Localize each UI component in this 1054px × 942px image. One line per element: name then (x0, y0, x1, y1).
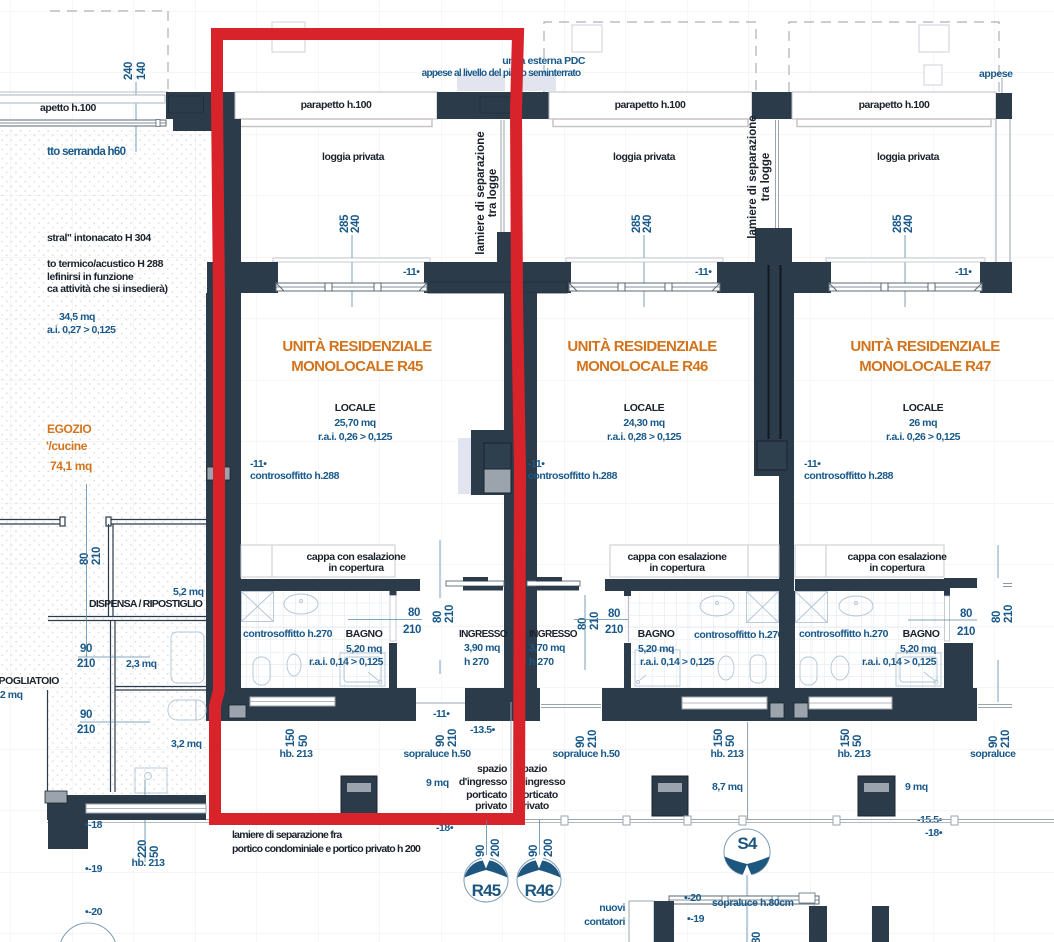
svg-text:50: 50 (725, 735, 737, 747)
svg-text:•-19: •-19 (687, 913, 705, 925)
svg-text:90: 90 (575, 736, 587, 748)
svg-text:controsoffitto h.270: controsoffitto h.270 (243, 628, 333, 640)
svg-text:stral" intonacato H 304: stral" intonacato H 304 (47, 232, 151, 244)
svg-text:MONOLOCALE R45: MONOLOCALE R45 (291, 358, 423, 375)
svg-text:•-19: •-19 (85, 863, 103, 875)
svg-text:h 270: h 270 (529, 656, 554, 668)
svg-text:50: 50 (852, 735, 864, 747)
svg-text:150: 150 (713, 729, 725, 747)
svg-text:5,20 mq: 5,20 mq (346, 643, 382, 655)
svg-text:9 mq: 9 mq (426, 777, 449, 789)
svg-text:80: 80 (751, 932, 763, 942)
svg-text:controsoffitto h.270: controsoffitto h.270 (694, 629, 784, 641)
svg-text:80: 80 (79, 553, 91, 565)
svg-text:parapetto h.100: parapetto h.100 (301, 99, 372, 111)
svg-text:-11•: -11• (955, 266, 972, 278)
svg-text:200: 200 (543, 839, 555, 857)
svg-text:lamiere di separazione: lamiere di separazione (747, 115, 759, 238)
svg-text:210: 210 (403, 624, 421, 636)
svg-text:loggia privata: loggia privata (322, 151, 385, 163)
svg-text:90: 90 (988, 736, 1000, 748)
svg-text:BAGNO: BAGNO (638, 628, 675, 640)
svg-text:BAGNO: BAGNO (903, 628, 940, 640)
svg-text:sopraluce h.80cm: sopraluce h.80cm (712, 897, 794, 909)
svg-text:90: 90 (435, 735, 447, 747)
svg-text:80: 80 (408, 607, 420, 619)
svg-text:210: 210 (77, 658, 95, 670)
svg-text:90: 90 (528, 845, 540, 857)
svg-text:r.a.i. 0,26 > 0,125: r.a.i. 0,26 > 0,125 (318, 431, 393, 443)
svg-text:210: 210 (91, 547, 103, 565)
svg-text:LOCALE: LOCALE (624, 402, 665, 414)
svg-text:sopraluce h.50: sopraluce h.50 (552, 748, 620, 760)
svg-text:parapetto h.100: parapetto h.100 (615, 99, 686, 111)
svg-text:tto serranda h60: tto serranda h60 (47, 146, 126, 158)
svg-text:UNITÀ RESIDENZIALE: UNITÀ RESIDENZIALE (567, 338, 717, 355)
svg-text:lamiere di separazione fra: lamiere di separazione fra (232, 829, 342, 841)
svg-text:-13.5•: -13.5• (470, 724, 496, 736)
svg-text:loggia privata: loggia privata (877, 151, 940, 163)
svg-text:tra logge: tra logge (760, 153, 772, 202)
svg-text:controsoffitto h.270: controsoffitto h.270 (799, 628, 889, 640)
svg-text:-11•: -11• (433, 708, 450, 720)
svg-text:240: 240 (123, 62, 135, 80)
svg-text:210: 210 (1000, 730, 1012, 748)
svg-text:MONOLOCALE R46: MONOLOCALE R46 (576, 358, 708, 375)
svg-text:90: 90 (80, 643, 92, 655)
svg-text:LOCALE: LOCALE (903, 402, 944, 414)
svg-text:-11•: -11• (695, 266, 712, 278)
svg-text:R46: R46 (525, 881, 554, 900)
svg-text:•-20: •-20 (85, 906, 103, 918)
svg-text:d'ingresso: d'ingresso (459, 776, 507, 788)
svg-text:hb. 213: hb. 213 (131, 857, 165, 869)
svg-text:5,2 mq: 5,2 mq (173, 586, 204, 598)
svg-text:r.a.i. 0,14 > 0,125: r.a.i. 0,14 > 0,125 (309, 656, 384, 668)
svg-text:80: 80 (608, 608, 620, 620)
svg-text:in copertura: in copertura (649, 562, 705, 574)
svg-text:h 270: h 270 (464, 656, 489, 668)
svg-text:INGRESSO: INGRESSO (529, 629, 578, 640)
svg-text:r.a.i. 0,26 > 0,125: r.a.i. 0,26 > 0,125 (886, 431, 961, 443)
svg-text:150: 150 (840, 729, 852, 747)
svg-text:controsoffitto h.288: controsoffitto h.288 (250, 470, 340, 482)
svg-text:UNITÀ RESIDENZIALE: UNITÀ RESIDENZIALE (282, 338, 432, 355)
svg-text:UNITÀ RESIDENZIALE: UNITÀ RESIDENZIALE (850, 338, 1000, 355)
svg-text:r.a.i. 0,14 > 0,125: r.a.i. 0,14 > 0,125 (862, 656, 937, 668)
svg-text:hb. 213: hb. 213 (710, 748, 744, 760)
svg-text:-18•: -18• (925, 827, 943, 839)
svg-text:210: 210 (957, 626, 975, 638)
svg-text:SPOGLIATOIO: SPOGLIATOIO (0, 675, 59, 687)
svg-text:INGRESSO: INGRESSO (459, 629, 508, 640)
svg-text:240: 240 (350, 215, 362, 233)
svg-text:74,1 mq: 74,1 mq (50, 459, 92, 473)
svg-text:-11•: -11• (403, 266, 420, 278)
svg-text:contatori: contatori (584, 916, 625, 928)
svg-text:26 mq: 26 mq (909, 417, 937, 429)
svg-text:privato: privato (475, 800, 507, 812)
svg-text:ca attività che si insedierà): ca attività che si insedierà) (47, 283, 168, 295)
svg-text:-11•: -11• (250, 458, 267, 470)
svg-text:5,20 mq: 5,20 mq (638, 643, 674, 655)
svg-text:210: 210 (587, 730, 599, 748)
svg-text:apetto h.100: apetto h.100 (40, 102, 96, 114)
svg-text:80: 80 (960, 608, 972, 620)
svg-text:150: 150 (285, 729, 297, 747)
svg-text:200: 200 (490, 839, 502, 857)
svg-text:hb. 213: hb. 213 (279, 748, 313, 760)
svg-text:5,20 mq: 5,20 mq (900, 643, 936, 655)
svg-text:80: 80 (991, 611, 1003, 623)
svg-text:nuovi: nuovi (599, 902, 625, 914)
svg-text:to termico/acustico H 288: to termico/acustico H 288 (47, 258, 164, 270)
svg-text:LOCALE: LOCALE (335, 402, 376, 414)
svg-text:loggia privata: loggia privata (613, 151, 676, 163)
svg-text:BAGNO: BAGNO (346, 628, 383, 640)
svg-text:4,2 mq: 4,2 mq (0, 689, 23, 701)
svg-text:spazio: spazio (477, 763, 507, 775)
svg-text:MONOLOCALE R47: MONOLOCALE R47 (859, 358, 991, 375)
svg-text:9 mq: 9 mq (905, 781, 928, 793)
svg-text:lefinirsi in funzione: lefinirsi in funzione (47, 271, 134, 283)
svg-text:210: 210 (447, 729, 459, 747)
svg-text:2,3 mq: 2,3 mq (126, 658, 157, 670)
svg-text:controsoffitto h.288: controsoffitto h.288 (528, 470, 618, 482)
svg-text:r.a.i. 0,28 > 0,125: r.a.i. 0,28 > 0,125 (607, 431, 682, 443)
svg-text:140: 140 (136, 62, 148, 80)
svg-text:R45: R45 (472, 881, 501, 900)
svg-text:24,30 mq: 24,30 mq (623, 417, 664, 429)
svg-text:3,90 mq: 3,90 mq (464, 642, 500, 654)
svg-text:in copertura: in copertura (869, 562, 925, 574)
svg-text:DISPENSA / RIPOSTIGLIO: DISPENSA / RIPOSTIGLIO (89, 598, 203, 610)
svg-text:80: 80 (432, 611, 444, 623)
svg-text:tra logge: tra logge (487, 169, 499, 218)
svg-text:hb. 213: hb. 213 (837, 748, 871, 760)
svg-text:220: 220 (137, 840, 149, 858)
svg-text:'/cucine: '/cucine (46, 439, 88, 453)
svg-text:25,70 mq: 25,70 mq (334, 417, 375, 429)
svg-text:r.a.i. 0,14 > 0,125: r.a.i. 0,14 > 0,125 (640, 656, 715, 668)
svg-text:sopraluce: sopraluce (970, 748, 1016, 760)
svg-text:8,7 mq: 8,7 mq (712, 781, 743, 793)
svg-text:portico condominiale e portico: portico condominiale e portico privato h… (232, 843, 421, 855)
svg-text:EGOZIO: EGOZIO (47, 422, 91, 436)
svg-text:•-18: •-18 (85, 819, 103, 831)
svg-text:210: 210 (77, 724, 95, 736)
svg-text:3,2 mq: 3,2 mq (171, 738, 202, 750)
svg-text:34,5 mq: 34,5 mq (59, 311, 95, 323)
svg-text:90: 90 (475, 845, 487, 857)
svg-text:a.i. 0,27 > 0,125: a.i. 0,27 > 0,125 (47, 324, 116, 336)
svg-text:240: 240 (903, 215, 915, 233)
svg-text:•-20: •-20 (684, 892, 702, 904)
svg-text:240: 240 (642, 215, 654, 233)
svg-text:in copertura: in copertura (328, 562, 384, 574)
svg-text:210: 210 (589, 612, 601, 630)
svg-text:parapetto h.100: parapetto h.100 (859, 99, 930, 111)
svg-text:lamiere di separazione: lamiere di separazione (475, 131, 487, 254)
svg-text:50: 50 (298, 735, 310, 747)
svg-text:90: 90 (80, 709, 92, 721)
svg-text:-11•: -11• (528, 458, 545, 470)
svg-text:210: 210 (1003, 605, 1015, 623)
svg-text:sopraluce h.50: sopraluce h.50 (403, 748, 471, 760)
svg-text:controsoffitto h.288: controsoffitto h.288 (804, 470, 894, 482)
svg-text:-11•: -11• (804, 458, 821, 470)
svg-text:appese al livello del piano se: appese al livello del piano seminterrato (422, 68, 581, 79)
svg-text:3,70 mq: 3,70 mq (529, 642, 565, 654)
svg-text:210: 210 (605, 624, 623, 636)
svg-text:S4: S4 (737, 834, 758, 853)
svg-text:210: 210 (444, 605, 456, 623)
svg-text:appese: appese (979, 68, 1013, 80)
